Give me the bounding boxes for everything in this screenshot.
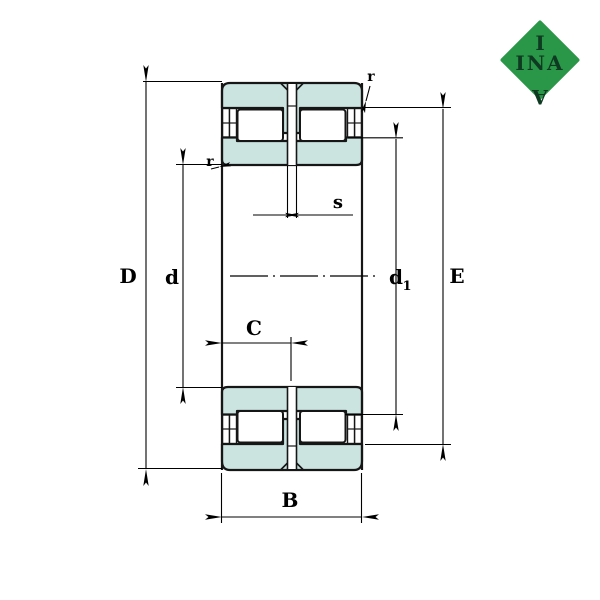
bearing-drawing: D d d 1 E B C s r r I INA A	[0, 0, 600, 600]
label-rib-diameter-d1-sub: 1	[402, 279, 411, 294]
roller-bottom-right	[300, 411, 346, 443]
roller-bottom-left	[238, 411, 284, 443]
r-leader-right	[366, 86, 370, 101]
logo-text-middle: INA	[515, 51, 564, 75]
label-inner-width-C: C	[246, 316, 262, 340]
label-bore-diameter-d: d	[165, 265, 179, 289]
bearing-technical-drawing-page: D d d 1 E B C s r r I INA A	[0, 0, 600, 600]
label-outer-diameter-D: D	[119, 264, 136, 288]
label-chamfer-r-left: r	[206, 154, 214, 170]
label-raceway-diameter-E: E	[449, 264, 464, 288]
ina-logo: I INA A	[500, 20, 581, 109]
label-rib-diameter-d1: d	[389, 265, 403, 289]
logo-letter-bottom: A	[532, 85, 549, 109]
label-chamfer-r-right: r	[367, 69, 375, 85]
roller-top-left	[238, 110, 284, 142]
label-slot-width-s: s	[333, 192, 343, 213]
roller-top-right	[300, 110, 346, 142]
label-width-B: B	[282, 488, 299, 512]
